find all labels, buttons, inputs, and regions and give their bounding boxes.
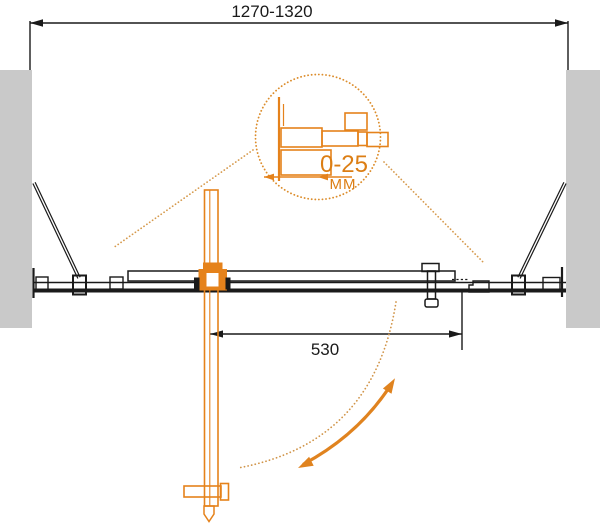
arrow-left-icon xyxy=(210,330,223,337)
leader-line-right xyxy=(384,162,483,262)
door-handle-bar xyxy=(184,486,221,497)
door-panel xyxy=(205,190,219,506)
swing-arrow-shaft xyxy=(303,383,392,465)
carriage-rail-mark-left xyxy=(194,278,200,291)
knob-foot xyxy=(425,299,438,307)
leader-line-left xyxy=(113,150,253,248)
diagram-svg: 1270-1320 530 xyxy=(0,0,600,532)
carriage-rail-mark-right xyxy=(226,278,231,290)
support-bar-left xyxy=(35,182,80,277)
arrow-left-icon xyxy=(30,19,43,27)
door-carriage-window xyxy=(207,273,219,287)
knob-stem xyxy=(428,271,436,299)
support-bar-left xyxy=(33,184,78,279)
top-dimension: 1270-1320 xyxy=(30,2,568,70)
arrow-right-icon xyxy=(555,19,568,27)
support-bar-right xyxy=(518,182,564,277)
door xyxy=(184,190,231,522)
detail-circle xyxy=(256,75,381,200)
door-width-label: 530 xyxy=(311,340,339,359)
support-bar-right xyxy=(520,184,566,279)
detail-unit-label: MM xyxy=(330,176,357,193)
wall-right xyxy=(566,70,600,328)
swing-indicator xyxy=(238,302,396,468)
panel-knob xyxy=(422,264,439,308)
detail-range-label: 0-25 xyxy=(320,151,368,178)
fixed-glass-panel xyxy=(128,271,455,281)
swing-arc xyxy=(238,302,396,468)
wall-bracket-left xyxy=(36,277,48,290)
door-bottom-tip xyxy=(204,506,214,522)
door-dimension: 530 xyxy=(210,292,462,359)
wall-left xyxy=(0,70,32,328)
track xyxy=(33,264,566,308)
installation-diagram: 1270-1320 530 xyxy=(0,0,600,532)
detail-callout: 0-25 MM xyxy=(113,75,483,263)
overall-width-label: 1270-1320 xyxy=(231,2,312,21)
arrow-right-icon xyxy=(449,330,462,337)
